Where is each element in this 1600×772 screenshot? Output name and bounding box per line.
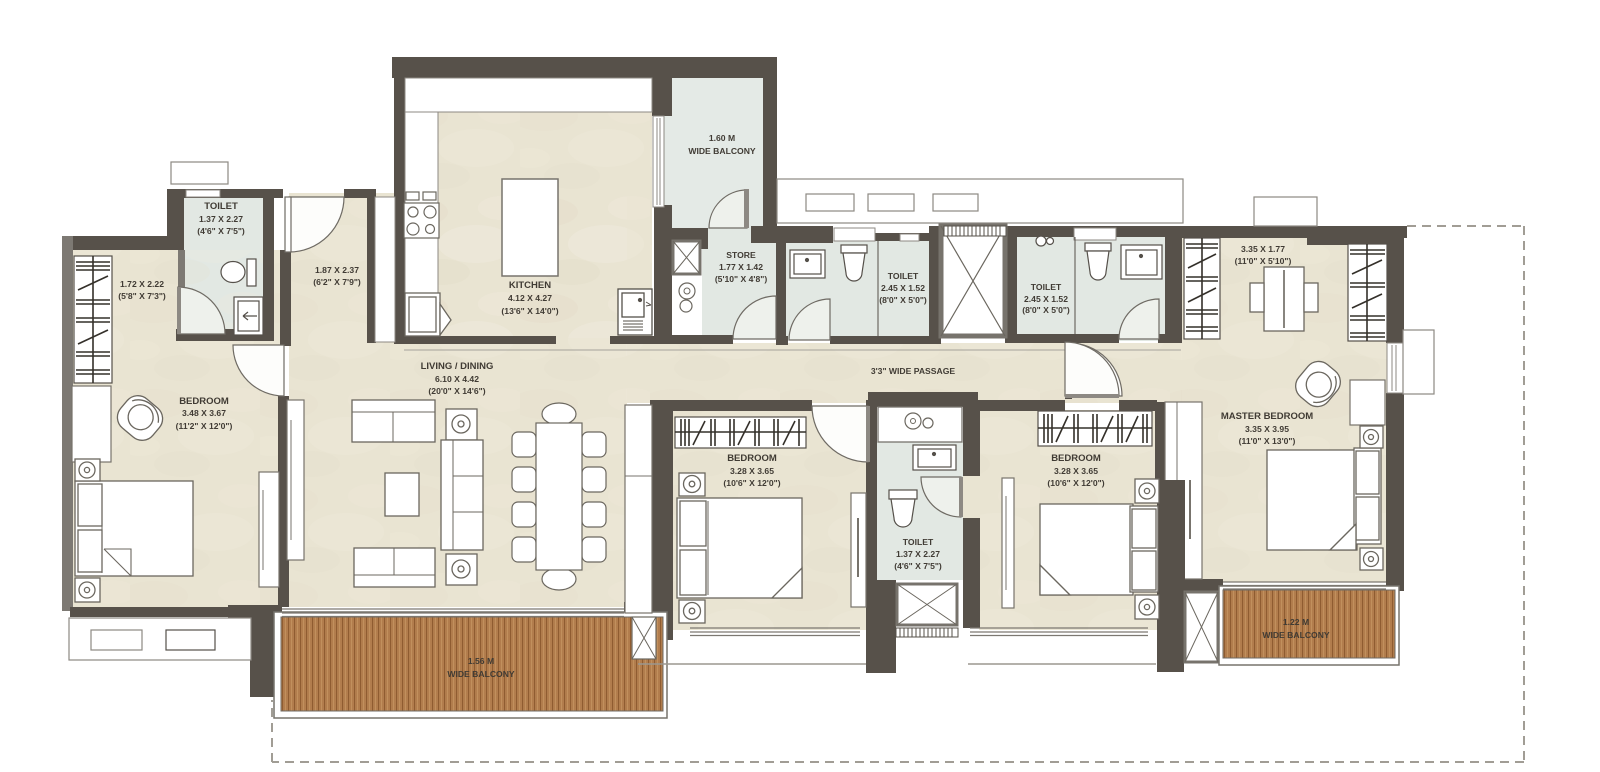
svg-text:BEDROOM: BEDROOM <box>179 396 229 407</box>
svg-text:4.12 X 4.27: 4.12 X 4.27 <box>508 293 552 303</box>
svg-text:3.28 X 3.65: 3.28 X 3.65 <box>730 466 774 476</box>
svg-text:3.35 X 1.77: 3.35 X 1.77 <box>1241 244 1285 254</box>
svg-text:(8'0" X 5'0"): (8'0" X 5'0") <box>879 295 927 305</box>
svg-text:TOILET: TOILET <box>888 271 919 281</box>
svg-text:(10'6" X 12'0"): (10'6" X 12'0") <box>723 478 780 488</box>
svg-text:(5'10" X 4'8"): (5'10" X 4'8") <box>715 274 768 284</box>
svg-text:TOILET: TOILET <box>204 201 238 212</box>
svg-text:6.10 X 4.42: 6.10 X 4.42 <box>435 374 479 384</box>
svg-text:1.56 M: 1.56 M <box>468 656 494 666</box>
svg-text:TOILET: TOILET <box>1031 282 1062 292</box>
svg-text:1.77 X 1.42: 1.77 X 1.42 <box>719 262 763 272</box>
svg-text:1.37 X 2.27: 1.37 X 2.27 <box>896 549 940 559</box>
svg-text:KITCHEN: KITCHEN <box>509 280 551 291</box>
svg-text:(11'2" X 12'0"): (11'2" X 12'0") <box>176 421 233 431</box>
svg-text:BEDROOM: BEDROOM <box>1051 453 1101 464</box>
svg-text:3.28 X 3.65: 3.28 X 3.65 <box>1054 466 1098 476</box>
svg-text:TOILET: TOILET <box>903 537 934 547</box>
svg-text:(11'0" X 13'0"): (11'0" X 13'0") <box>1239 436 1296 446</box>
svg-text:(11'0" X 5'10"): (11'0" X 5'10") <box>1235 256 1292 266</box>
svg-text:WIDE BALCONY: WIDE BALCONY <box>447 669 515 679</box>
svg-text:(4'6" X 7'5"): (4'6" X 7'5") <box>197 226 245 236</box>
svg-text:(13'6" X 14'0"): (13'6" X 14'0") <box>501 306 558 316</box>
svg-text:STORE: STORE <box>726 250 756 260</box>
svg-text:1.37 X 2.27: 1.37 X 2.27 <box>199 214 243 224</box>
svg-text:WIDE BALCONY: WIDE BALCONY <box>1262 630 1330 640</box>
svg-text:1.60 M: 1.60 M <box>709 133 735 143</box>
svg-text:2.45 X 1.52: 2.45 X 1.52 <box>1024 294 1068 304</box>
svg-text:3.35 X 3.95: 3.35 X 3.95 <box>1245 424 1289 434</box>
svg-text:(6'2" X 7'9"): (6'2" X 7'9") <box>313 277 361 287</box>
svg-text:3.48 X 3.67: 3.48 X 3.67 <box>182 408 226 418</box>
svg-text:1.72 X 2.22: 1.72 X 2.22 <box>120 279 164 289</box>
svg-text:2.45 X 1.52: 2.45 X 1.52 <box>881 283 925 293</box>
svg-text:(4'6" X 7'5"): (4'6" X 7'5") <box>894 561 942 571</box>
svg-text:BEDROOM: BEDROOM <box>727 453 777 464</box>
svg-text:(8'0" X 5'0"): (8'0" X 5'0") <box>1022 305 1070 315</box>
svg-text:(20'0" X 14'6"): (20'0" X 14'6") <box>428 386 485 396</box>
svg-text:WIDE BALCONY: WIDE BALCONY <box>688 146 756 156</box>
svg-text:LIVING / DINING: LIVING / DINING <box>421 361 494 372</box>
svg-text:3'3" WIDE PASSAGE: 3'3" WIDE PASSAGE <box>871 366 956 376</box>
svg-text:MASTER BEDROOM: MASTER BEDROOM <box>1221 411 1313 422</box>
svg-text:(10'6" X 12'0"): (10'6" X 12'0") <box>1047 478 1104 488</box>
svg-text:1.22 M: 1.22 M <box>1283 617 1309 627</box>
svg-text:(5'8" X 7'3"): (5'8" X 7'3") <box>118 291 166 301</box>
svg-text:1.87 X 2.37: 1.87 X 2.37 <box>315 265 359 275</box>
